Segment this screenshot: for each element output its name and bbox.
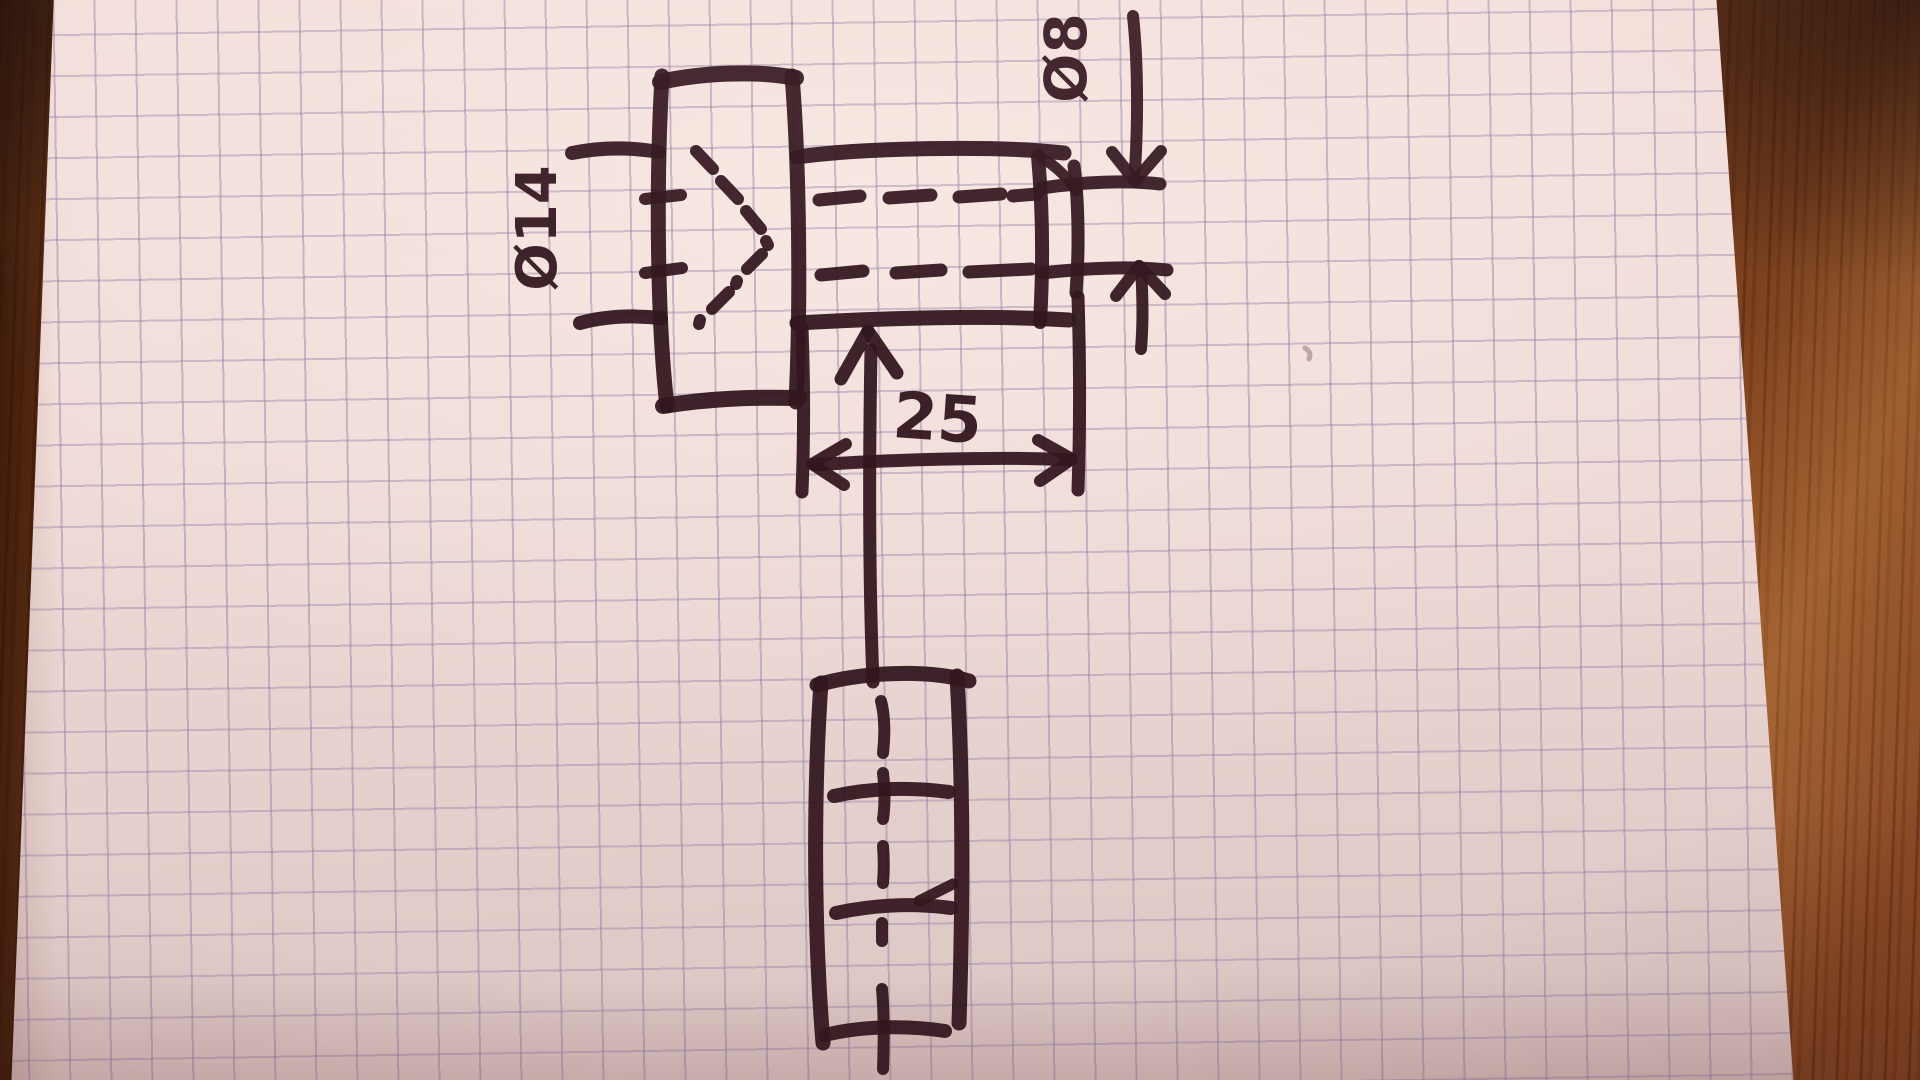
length-label: 25 (890, 379, 984, 459)
tip-diameter-label: Ø8 (1032, 13, 1100, 103)
head-diameter-label: Ø14 (505, 165, 570, 291)
shaft-hidden-lines (819, 194, 1037, 275)
head-hidden-lines (696, 151, 768, 324)
pointer-arrow (841, 331, 897, 682)
photo-of-hand-drawn-sketch: Ø8 25 Ø14 (0, 0, 1920, 1080)
marker-sketch: Ø8 25 Ø14 (0, 0, 1920, 1080)
lower-part-outline (816, 673, 969, 1043)
lower-part-centerline (881, 701, 885, 1069)
pencil-smudge (1305, 348, 1310, 359)
bolt-head-outline (658, 73, 799, 406)
